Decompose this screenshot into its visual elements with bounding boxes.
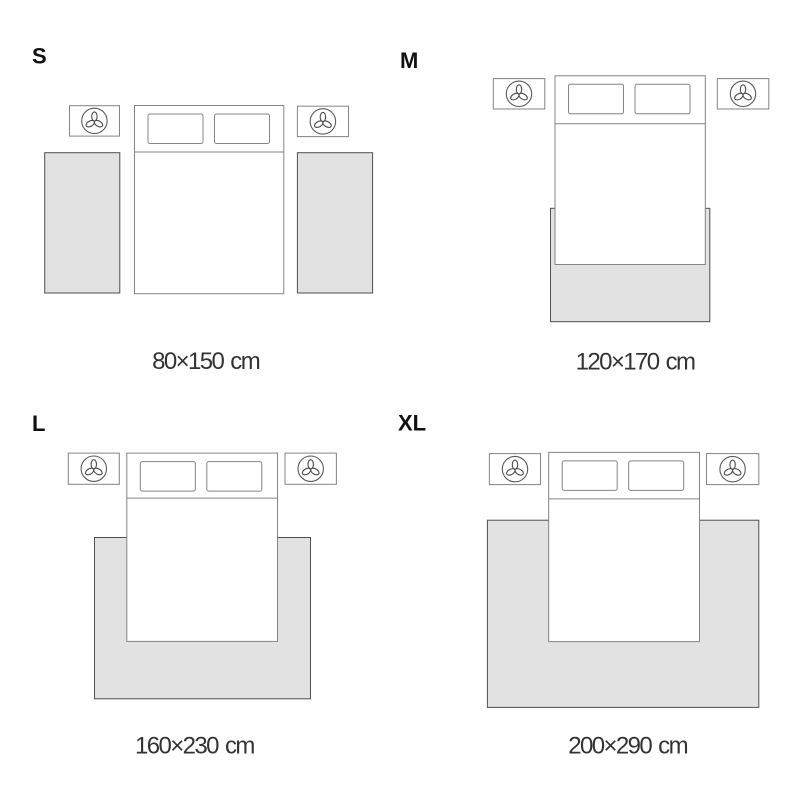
svg-text:80×150 cm: 80×150 cm	[152, 348, 260, 375]
svg-text:120×170 cm: 120×170 cm	[576, 349, 695, 376]
svg-text:200×290 cm: 200×290 cm	[568, 733, 687, 760]
svg-text:XL: XL	[398, 411, 426, 436]
svg-text:160×230 cm: 160×230 cm	[135, 733, 254, 760]
svg-text:M: M	[400, 48, 418, 73]
svg-text:L: L	[32, 411, 45, 436]
svg-text:S: S	[32, 44, 47, 69]
